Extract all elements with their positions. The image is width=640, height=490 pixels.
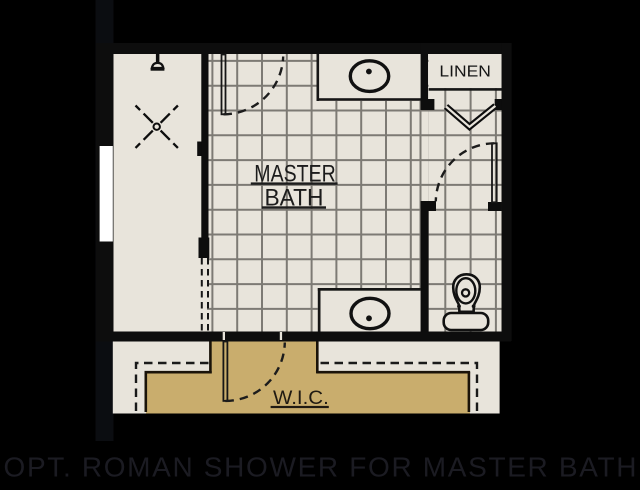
svg-text:LINEN: LINEN: [439, 64, 491, 81]
svg-text:OPT. ROMAN SHOWER FOR MASTER B: OPT. ROMAN SHOWER FOR MASTER BATH: [4, 451, 637, 482]
